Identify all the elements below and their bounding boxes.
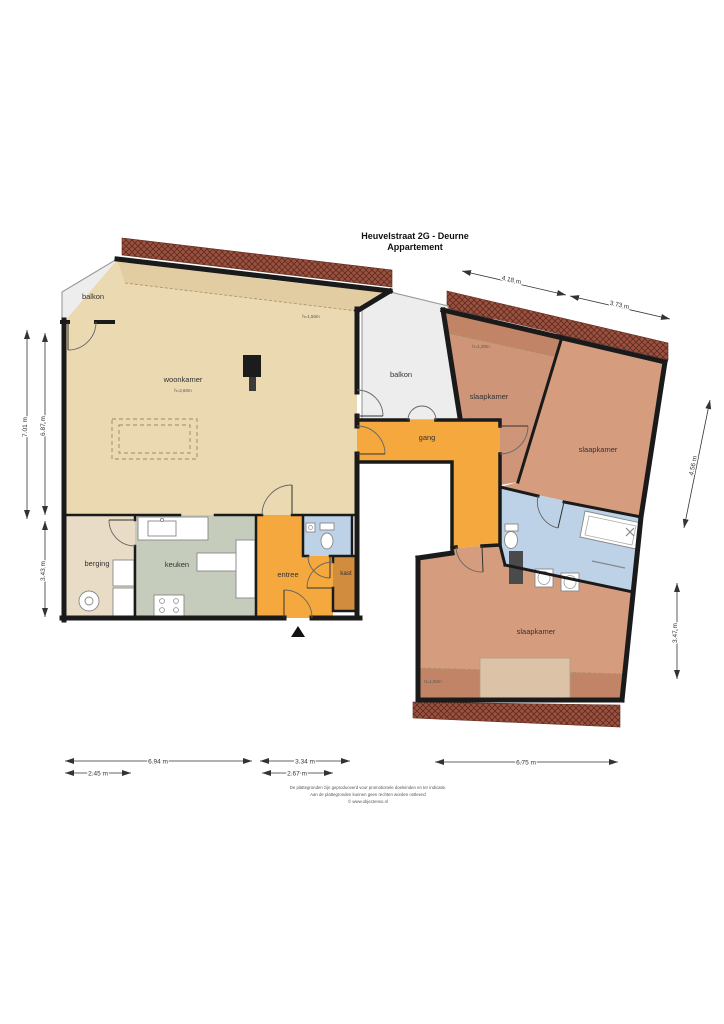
label-keuken: keuken	[165, 560, 189, 569]
toilet-tank	[320, 523, 334, 530]
small-sink	[306, 523, 315, 532]
entrance-arrow-icon	[291, 626, 305, 637]
roof-strip-right-bottom	[413, 702, 620, 727]
dim-bottom-entree-outer: 3.34 m	[295, 759, 315, 766]
dim-right-lower: 3.47 m	[672, 623, 679, 643]
dim-left-outer: 7.01 m	[22, 417, 29, 437]
label-slaapkamer-bottom: slaapkamer	[517, 627, 556, 636]
dim-bottom-berging: 2.45 m	[88, 771, 108, 778]
label-berging: berging	[84, 559, 109, 568]
toilet-bowl-icon	[321, 533, 333, 549]
label-entree: entree	[277, 570, 298, 579]
bed	[480, 658, 570, 698]
page-title-line2: Appartement	[387, 242, 443, 252]
label-slaapkamer-right: slaapkamer	[579, 445, 618, 454]
stove-pipe-icon	[249, 377, 256, 391]
kitchen-faucet	[160, 518, 163, 521]
dim-right-upper: 4.56 m	[688, 455, 699, 476]
dim-left-lower: 3.43 m	[40, 561, 47, 581]
floor-plan-page: Heuvelstraat 2G - Deurne Appartement	[0, 0, 724, 1024]
floor-plan: Heuvelstraat 2G - Deurne Appartement	[0, 0, 724, 1024]
label-slaapkamer-top: slaapkamer	[470, 392, 509, 401]
dim-bottom-kitchen: 6.94 m	[148, 759, 168, 766]
washing-machine-drum-icon	[85, 597, 93, 605]
dim-bottom-right: 6.75 m	[516, 760, 536, 767]
label-woonkamer: woonkamer	[163, 375, 203, 384]
label-h120: h=1,20m	[472, 344, 490, 349]
label-balkon-mid: balkon	[390, 370, 412, 379]
footer-line2: Aan de plattegronden kunnen geen rechten…	[310, 792, 426, 797]
appliance-box	[113, 560, 134, 586]
bedroom-furniture	[480, 658, 570, 698]
label-h150-top: h=1,50m	[302, 314, 320, 319]
stove-icon	[243, 355, 261, 377]
kitchen-sink	[148, 521, 176, 536]
label-kast: kast	[340, 570, 352, 577]
dim-top-left: 4.18 m	[501, 275, 522, 286]
label-balkon-left: balkon	[82, 292, 104, 301]
toilet-bowl-icon	[505, 532, 518, 549]
toilet-tank	[505, 524, 518, 531]
page-title-line1: Heuvelstraat 2G - Deurne	[361, 231, 469, 241]
label-gang: gang	[419, 433, 436, 442]
room-kast	[333, 556, 358, 611]
label-h150-bottom: h=1,50m	[424, 679, 442, 684]
footer-line1: De plattegronden zijn geproduceerd voor …	[290, 785, 446, 790]
label-woonkamer-height: h=2,60m	[174, 388, 192, 393]
kitchen-peninsula	[197, 553, 236, 571]
footer-line3: © www.objectenso.nl	[348, 799, 388, 804]
dim-left-inner: 6.87 m	[40, 416, 47, 436]
appliance-box	[113, 588, 134, 616]
dim-bottom-entree: 2.67 m	[287, 771, 307, 778]
footer-disclaimer: De plattegronden zijn geproduceerd voor …	[290, 785, 446, 804]
kitchen-tall-cabinet	[236, 540, 255, 598]
kitchen-stove	[154, 595, 184, 616]
dim-top-right: 3.73 m	[609, 300, 630, 311]
